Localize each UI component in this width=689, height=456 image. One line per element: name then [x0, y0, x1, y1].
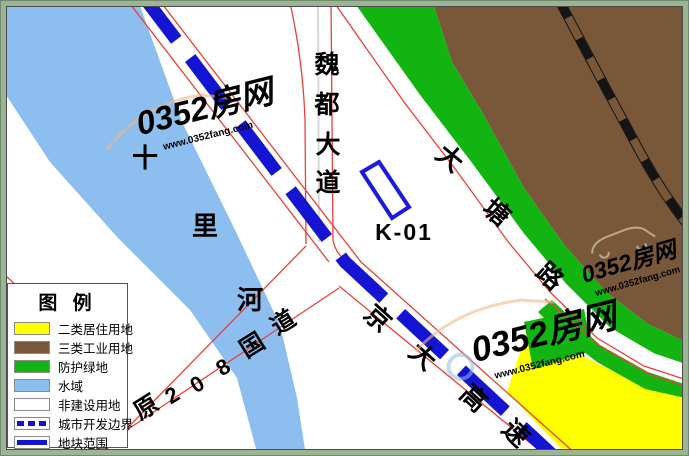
legend-row-plot-extent: 地块范围: [14, 433, 127, 452]
legend-row-urban-boundary: 城市开发边界: [14, 414, 127, 433]
weidu-char-1: 魏: [313, 51, 339, 79]
legend-label-water: 水域: [58, 376, 83, 395]
legend-swatch-green-buffer: [14, 360, 50, 373]
legend-title: 图 例: [14, 288, 121, 315]
legend-swatch-plot-extent: [14, 436, 50, 449]
legend-label-non-construction: 非建设用地: [58, 395, 121, 414]
legend-label-industrial: 三类工业用地: [58, 338, 133, 357]
weidu-char-4: 道: [315, 168, 340, 197]
legend-row-residential: 二类居住用地: [14, 319, 127, 338]
planning-map: K-01 十 里 河 魏 都 大 道 大 塘 路 京 大 高 速 原: [0, 0, 689, 456]
legend-row-industrial: 三类工业用地: [14, 338, 127, 357]
weidu-char-3: 大: [315, 131, 340, 159]
river-char-2: 里: [192, 211, 218, 241]
legend-label-residential: 二类居住用地: [58, 319, 133, 338]
legend-row-non-construction: 非建设用地: [14, 395, 127, 414]
legend-box: 图 例 二类居住用地 三类工业用地 防护绿地 水域 非建设用地 城市开发边界 地…: [7, 283, 128, 448]
legend-row-green-buffer: 防护绿地: [14, 357, 127, 376]
legend-label-green-buffer: 防护绿地: [58, 357, 108, 376]
river-char-3: 河: [237, 285, 263, 315]
weidu-char-2: 都: [313, 91, 339, 119]
legend-swatch-urban-boundary: [14, 417, 50, 430]
legend-swatch-industrial: [14, 341, 50, 354]
legend-row-water: 水域: [14, 376, 127, 395]
legend-swatch-residential: [14, 322, 50, 335]
plot-k01-label: K-01: [375, 219, 433, 245]
legend-label-plot-extent: 地块范围: [58, 433, 108, 452]
legend-label-urban-boundary: 城市开发边界: [58, 414, 133, 433]
legend-swatch-non-construction: [14, 398, 50, 411]
legend-swatch-water: [14, 379, 50, 392]
